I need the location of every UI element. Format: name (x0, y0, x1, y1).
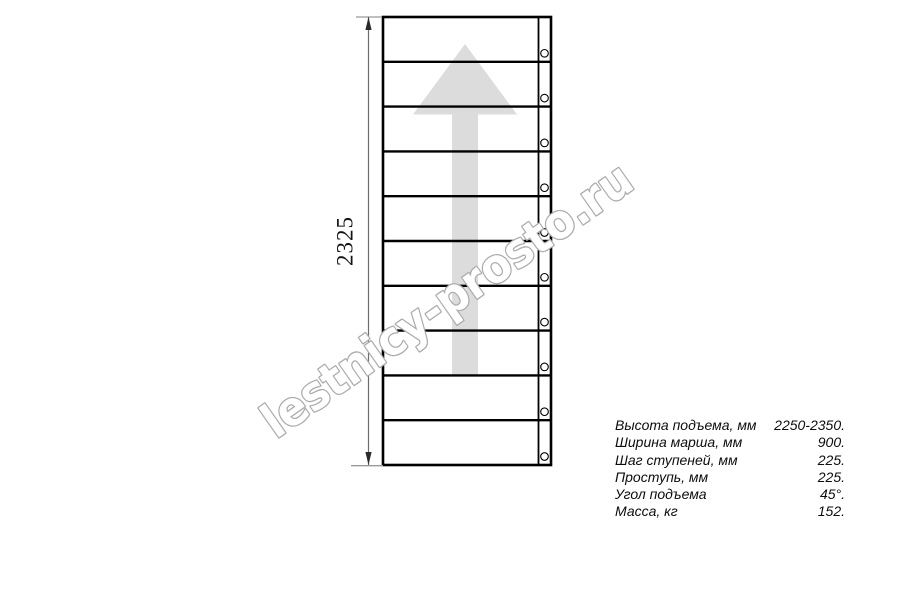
specs-table: Высота подъема, мм 2250-2350. Ширина мар… (615, 417, 845, 521)
spec-row: Проступь, мм 225. (615, 469, 845, 486)
spec-row: Ширина марша, мм 900. (615, 434, 845, 451)
dimension-value-label: 2325 (333, 216, 358, 266)
spec-row: Масса, кг 152. (615, 503, 845, 520)
dimension-arrow-up-icon (365, 17, 371, 30)
spec-row: Угол подъема 45°. (615, 486, 845, 503)
bolt-hole-circle (541, 139, 549, 147)
spec-value: 225. (818, 452, 845, 469)
spec-label: Масса, кг (615, 503, 678, 520)
spec-label: Проступь, мм (615, 469, 708, 486)
bolt-hole-circle (541, 408, 549, 416)
bolt-hole-circle (541, 184, 549, 192)
bolt-hole-circle (541, 50, 549, 58)
bolt-hole-circle (541, 453, 549, 461)
spec-label: Высота подъема, мм (615, 417, 757, 434)
bolt-hole-circle (541, 274, 549, 282)
stair-drawing-page: 2325 lestnicy-prosto.ru Высота подъема, … (0, 0, 900, 600)
spec-value: 900. (818, 434, 845, 451)
spec-row: Шаг ступеней, мм 225. (615, 452, 845, 469)
bolt-hole-circle (541, 94, 549, 102)
spec-value: 152. (818, 503, 845, 520)
spec-row: Высота подъема, мм 2250-2350. (615, 417, 845, 434)
dimension-arrow-down-icon (365, 452, 371, 465)
spec-label: Угол подъема (615, 486, 707, 503)
bolt-hole-circle (541, 318, 549, 326)
bolt-hole-circle (541, 363, 549, 371)
spec-label: Ширина марша, мм (615, 434, 742, 451)
spec-value: 225. (818, 469, 845, 486)
spec-value: 45°. (820, 486, 845, 503)
spec-label: Шаг ступеней, мм (615, 452, 738, 469)
spec-value: 2250-2350. (774, 417, 845, 434)
